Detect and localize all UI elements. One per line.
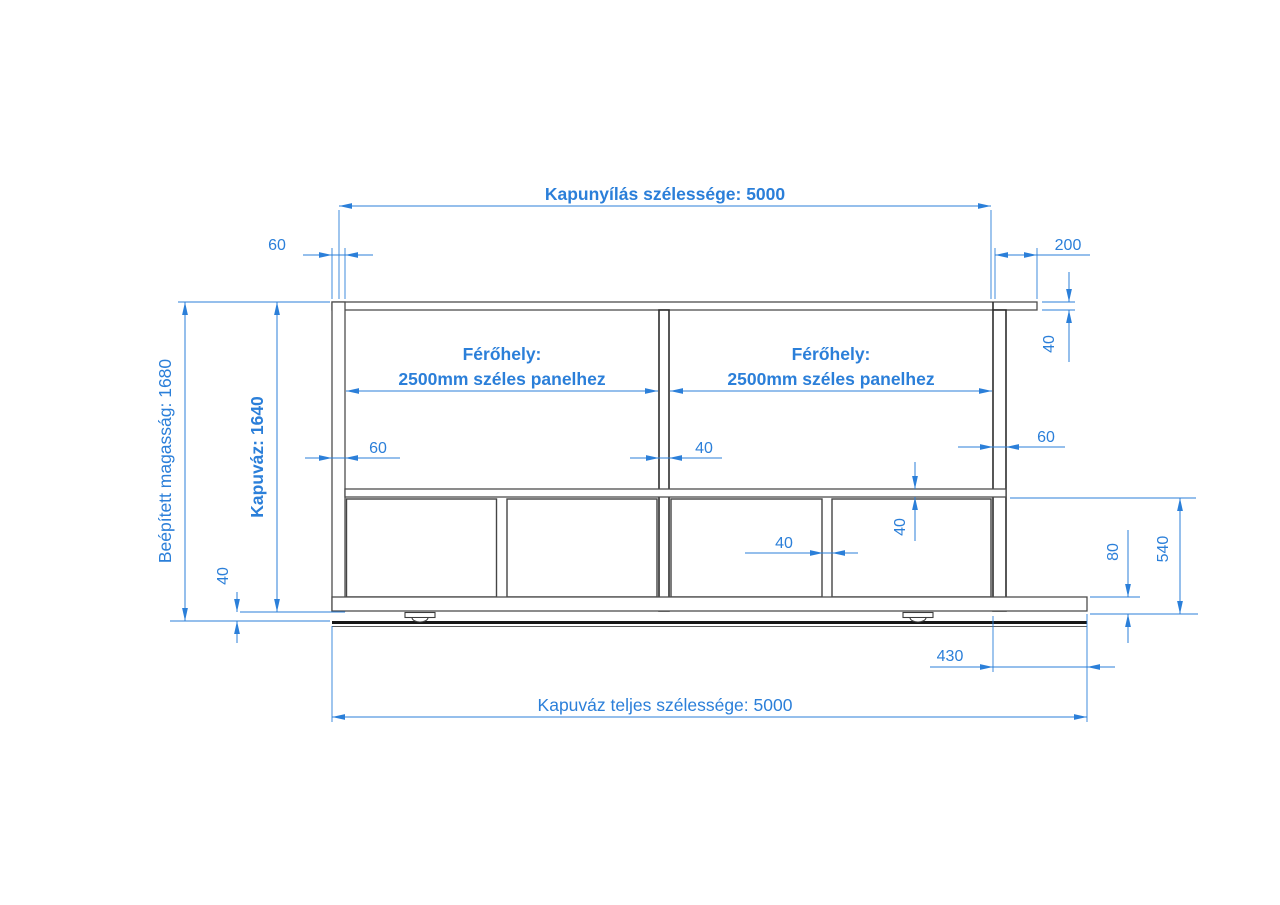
left-post-width-value: 60	[369, 440, 387, 457]
top-right-offset-value: 200	[1055, 237, 1082, 254]
dim-gate-opening-width: Kapunyílás szélessége: 5000	[339, 184, 991, 206]
bottom-clearance-value: 40	[215, 567, 232, 585]
bottom-rail	[332, 597, 1087, 611]
bay-right-label-line2: 2500mm széles panelhez	[727, 369, 934, 389]
sub-panel-1	[347, 499, 497, 597]
frame-height-label: Kapuváz: 1640	[247, 396, 267, 518]
right-post	[993, 310, 1006, 611]
roller-carriage-left	[405, 613, 435, 623]
center-post-width-value: 40	[695, 440, 713, 457]
lower-section-height-value: 540	[1155, 536, 1172, 563]
mid-rail	[345, 489, 1006, 497]
top-rail	[332, 302, 1037, 310]
sub-divider-gap-value: 40	[775, 535, 793, 552]
dim-top-right-offset: 200	[995, 237, 1090, 255]
gate-opening-width-label: Kapunyílás szélessége: 5000	[545, 184, 786, 204]
drawing-svg: Kapunyílás szélessége: 5000 60 200 40 Be…	[0, 0, 1280, 905]
flange-thickness-value: 40	[1041, 335, 1058, 353]
bay-left-label-line2: 2500mm széles panelhez	[398, 369, 605, 389]
dim-lower-section-height: 540	[1155, 498, 1180, 614]
dim-bottom-rail-height: 80	[1105, 530, 1128, 643]
dim-bottom-clearance: 40	[215, 567, 237, 643]
dim-center-post-width: 40	[630, 440, 722, 458]
center-post	[659, 310, 669, 611]
gate-frame-structure	[332, 302, 1087, 627]
left-post	[332, 302, 345, 611]
sub-panel-4	[832, 499, 991, 597]
gate-frame-technical-drawing: Kapunyílás szélessége: 5000 60 200 40 Be…	[0, 0, 1280, 905]
dim-installed-height: Beépített magasság: 1680	[155, 302, 185, 621]
sub-panel-3	[671, 499, 822, 597]
total-frame-width-label: Kapuváz teljes szélessége: 5000	[538, 695, 793, 715]
dim-left-post-width: 60	[305, 440, 400, 458]
left-post-width-top-value: 60	[268, 237, 286, 254]
roller-carriage-right	[903, 613, 933, 623]
dim-right-post-width: 60	[958, 429, 1065, 447]
bottom-rail-height-value: 80	[1105, 543, 1122, 561]
bay-right-label-line1: Férőhely:	[792, 344, 871, 364]
sub-panel-2	[507, 499, 657, 597]
mid-rail-thickness-value: 40	[892, 518, 909, 536]
dim-left-post-width-top: 60	[268, 237, 373, 255]
dim-bay-right-panel-space: Férőhely: 2500mm széles panelhez	[670, 344, 992, 391]
bay-left-label-line1: Férőhely:	[463, 344, 542, 364]
installed-height-label: Beépített magasság: 1680	[155, 359, 175, 564]
extension-lines	[170, 210, 1198, 722]
dim-total-frame-width: Kapuváz teljes szélessége: 5000	[332, 695, 1087, 717]
right-post-width-value: 60	[1037, 429, 1055, 446]
right-overhang-value: 430	[937, 648, 964, 665]
dim-frame-height: Kapuváz: 1640	[247, 302, 277, 612]
dim-bay-left-panel-space: Férőhely: 2500mm széles panelhez	[346, 344, 658, 391]
dim-flange-thickness: 40	[1041, 272, 1069, 362]
